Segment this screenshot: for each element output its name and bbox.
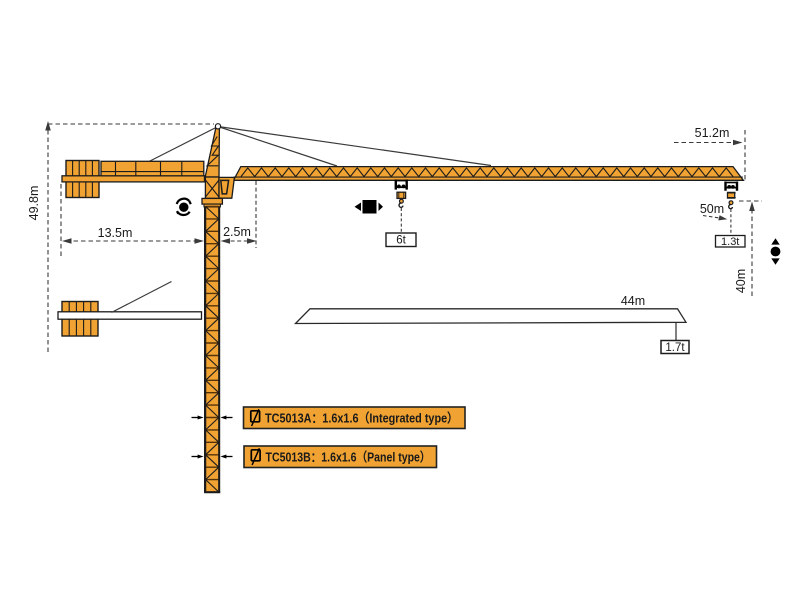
svg-text:51.2m: 51.2m — [695, 126, 730, 140]
svg-text:50m: 50m — [700, 202, 724, 216]
svg-text:1.3t: 1.3t — [721, 236, 739, 248]
svg-text:2.5m: 2.5m — [223, 225, 251, 239]
svg-text:13.5m: 13.5m — [98, 226, 133, 240]
svg-text:49.8m: 49.8m — [27, 186, 41, 221]
svg-text:TC5013A：1.6x1.6（Integrated typ: TC5013A：1.6x1.6（Integrated type） — [265, 411, 458, 426]
svg-text:6t: 6t — [396, 235, 406, 247]
svg-text:44m: 44m — [621, 294, 645, 308]
svg-text:1.7t: 1.7t — [665, 342, 685, 354]
svg-text:40m: 40m — [734, 269, 748, 293]
svg-text:TC5013B：1.6x1.6（Panel type）: TC5013B：1.6x1.6（Panel type） — [266, 450, 431, 465]
